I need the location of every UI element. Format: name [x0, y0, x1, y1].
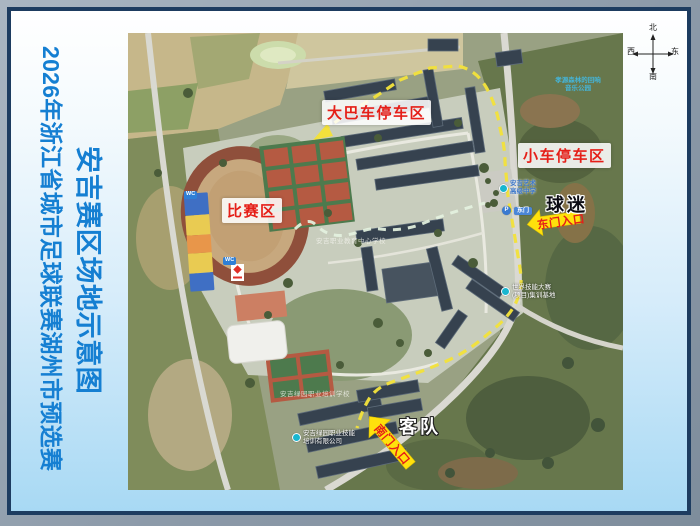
- compass-north-label: 北: [649, 24, 657, 32]
- satellite-map: 大巴车停车区 小车停车区 比赛区 球迷 客队 东门入口 南门入口 孝源森林的回响…: [128, 33, 623, 490]
- compass-west-label: 西: [627, 48, 635, 56]
- parking-icon: P: [502, 206, 511, 215]
- poi-skills-base: 世界技能大赛 (项目)集训基地: [512, 284, 555, 301]
- slide-title-main: 2026年浙江省城市足球联赛湖州市预选赛: [38, 46, 63, 471]
- training-co-poi-icon: [292, 433, 301, 442]
- zone-label-bus-parking: 大巴车停车区: [322, 100, 431, 125]
- zone-label-car-parking: 小车停车区: [518, 143, 611, 168]
- wc-badge-north: WC: [184, 191, 197, 199]
- east-gate-badge: 东门: [514, 207, 532, 215]
- skills-base-poi-icon: [501, 287, 510, 296]
- slide-title-sub: 安吉赛区场地示意图: [73, 146, 102, 394]
- poi-training-company: 安吉绿园职业技能 培训有限公司: [303, 430, 355, 447]
- poi-campus-south: 安吉绿园职业培训学校: [280, 391, 350, 399]
- poi-music-park: 孝源森林的回响 音乐公园: [551, 77, 605, 94]
- school-poi-icon: [499, 184, 508, 193]
- zone-label-match-area: 比赛区: [222, 198, 282, 223]
- poi-school: 安吉艺术 高级中学: [510, 180, 536, 197]
- poi-campus-center: 安吉职业教育中心学校: [316, 238, 386, 246]
- compass: 北 南 西 东: [627, 24, 679, 82]
- wc-badge-south: WC: [223, 257, 236, 265]
- slide-background: 2026年浙江省城市足球联赛湖州市预选赛 安吉赛区场地示意图: [7, 7, 691, 515]
- label-away-team: 客队: [399, 413, 441, 439]
- compass-south-label: 南: [649, 73, 657, 81]
- compass-east-label: 东: [671, 48, 679, 56]
